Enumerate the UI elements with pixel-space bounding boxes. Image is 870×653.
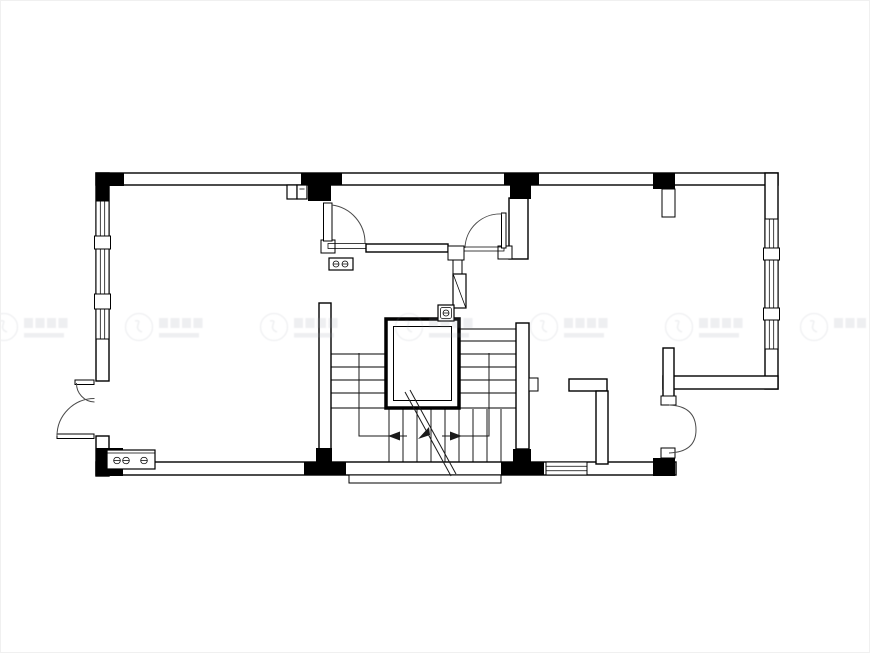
column-bottom-right <box>653 458 675 476</box>
wall-switch-boxes-top <box>287 185 307 199</box>
column-bottom-3 <box>501 449 544 475</box>
left-window-2 <box>96 249 109 294</box>
watermark-logo <box>531 314 608 341</box>
watermark-logo <box>801 314 867 341</box>
column-top-4-stub <box>662 189 675 217</box>
folding-door-arc-top <box>669 405 696 430</box>
shaft-neck-wall <box>453 260 462 275</box>
right-mullion-2 <box>764 308 780 320</box>
door-leaf-small <box>75 380 94 385</box>
door-leaf-large <box>57 434 94 439</box>
hall-door-1 <box>324 203 366 243</box>
door-arc <box>465 214 502 248</box>
wc-left-wall <box>596 391 608 464</box>
floor-plan-page <box>0 0 870 653</box>
door-jamb-2 <box>448 246 464 260</box>
watermark-logo <box>1 314 68 341</box>
notch-horizontal-wall <box>663 376 778 389</box>
bottom-window <box>546 462 587 475</box>
interior-walls <box>319 198 608 464</box>
stair-direction-arrow-left <box>388 432 400 441</box>
meter-box-bottom-left <box>107 450 155 469</box>
left-exterior-double-door <box>57 380 95 439</box>
left-window-3 <box>96 309 109 339</box>
left-window-1 <box>96 201 109 236</box>
right-window-1 <box>765 219 778 248</box>
column-top-3 <box>504 173 539 199</box>
watermark-logo <box>666 314 743 341</box>
door-leaf <box>324 203 333 241</box>
bottom-wall <box>96 462 676 475</box>
stair-right-wall-bump <box>529 378 538 391</box>
stair-treads-right-flight <box>459 329 516 393</box>
watermark-logo <box>126 314 203 341</box>
top-wall <box>96 173 778 185</box>
left-mullion-2 <box>95 294 111 309</box>
folding-door-jamb-top <box>661 396 676 405</box>
stair-right-wall <box>516 323 529 449</box>
stair-direction-arrow-right <box>450 432 462 441</box>
column-top-4 <box>653 173 675 217</box>
door-leaf <box>502 213 507 248</box>
wc-top-wall <box>569 379 607 391</box>
hall-bottom-wall <box>366 244 448 252</box>
right-window-3 <box>765 320 778 349</box>
right-mullion-1 <box>764 248 780 260</box>
floor-plan-drawing <box>1 1 870 653</box>
meter-box-hall <box>329 258 353 270</box>
folding-door-bottom-right <box>661 396 696 458</box>
duct-with-diagonal <box>453 274 466 308</box>
break-line-arrowhead <box>418 427 430 439</box>
left-mullion-1 <box>95 236 111 249</box>
column-top-left <box>96 173 124 201</box>
hall-door-2 <box>465 213 506 248</box>
exterior-step <box>349 475 501 483</box>
right-window-2 <box>765 260 778 308</box>
door-arc <box>332 205 365 243</box>
door-arc-large <box>57 399 95 437</box>
